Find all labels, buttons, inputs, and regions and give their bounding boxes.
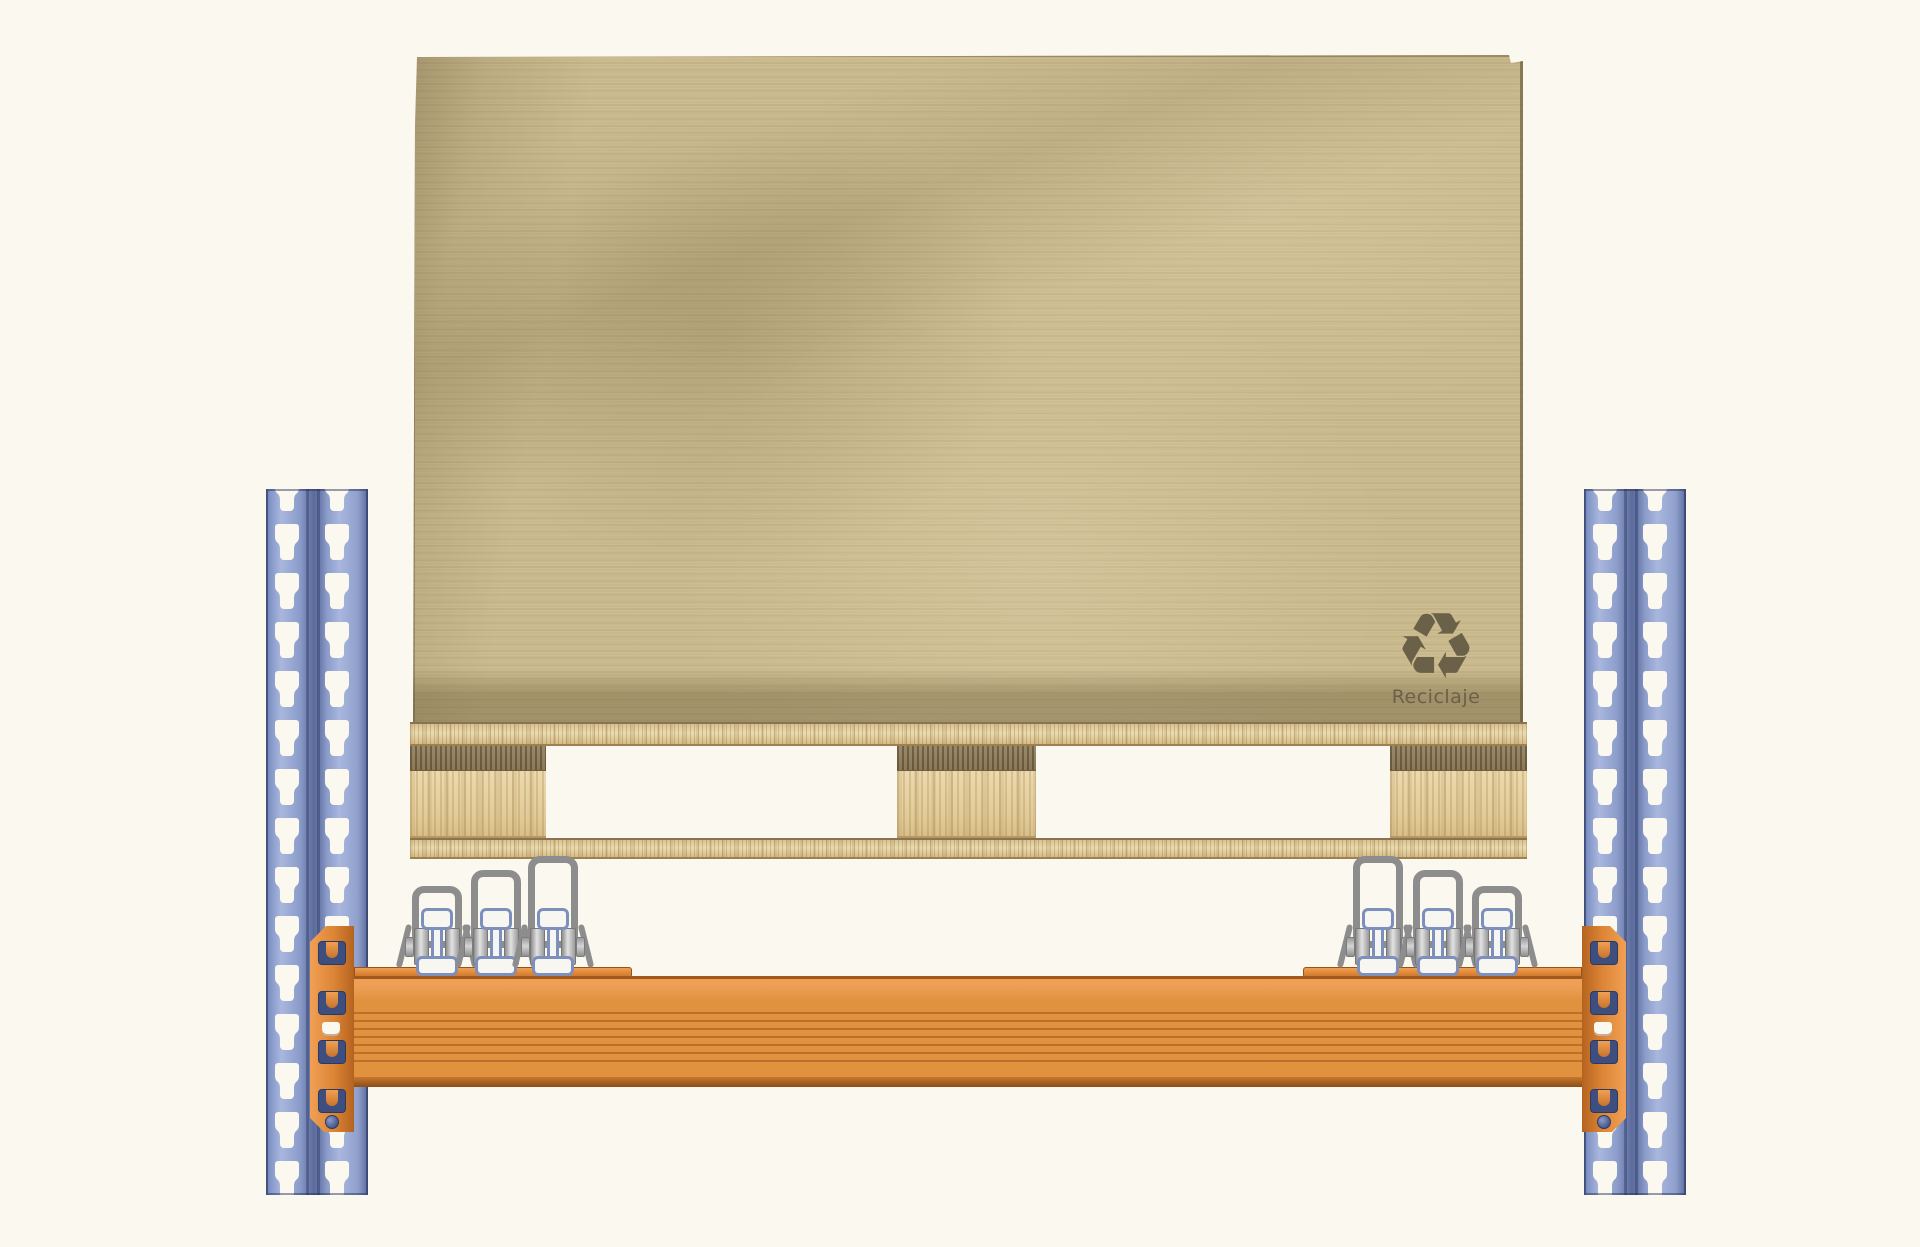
roller-top-plate (1481, 908, 1513, 930)
pallet-block-end-grain (1390, 746, 1527, 771)
connector-safety-slot (322, 1022, 340, 1036)
roller-base-plate (475, 956, 517, 976)
roller-base-plate (1417, 956, 1459, 976)
rack-beam (354, 976, 1582, 1087)
roller-base-plate (532, 956, 574, 976)
roller-assembly (515, 856, 591, 976)
roller-axle-left (464, 937, 473, 957)
pallet-block-body (410, 771, 546, 838)
connector-hook (1590, 1089, 1618, 1113)
roller-base-plate (1476, 956, 1518, 976)
connector-hook (318, 1040, 346, 1064)
recycle-mark: ♻ Reciclaje (1388, 603, 1484, 708)
connector-hook (318, 941, 346, 965)
pallet-block-body (897, 771, 1036, 838)
pallet-rack-illustration: ♻ Reciclaje (0, 0, 1920, 1247)
roller-base-plate (416, 956, 458, 976)
connector-bolt (325, 1115, 339, 1129)
recycle-label: Reciclaje (1388, 686, 1484, 708)
pallet-block-end-grain (410, 746, 546, 771)
roller-top-plate (421, 908, 453, 930)
roller-top-plate (537, 908, 569, 930)
roller-base-plate (1357, 956, 1399, 976)
roller-axle-left (1346, 937, 1355, 957)
roller-top-plate (480, 908, 512, 930)
roller-axle-right (1520, 937, 1529, 957)
connector-hook (318, 1089, 346, 1113)
connector-hook (1590, 1040, 1618, 1064)
beam-grooves (354, 1012, 1582, 1064)
roller-assembly (1459, 886, 1535, 976)
beam-connector-right (1582, 926, 1626, 1132)
connector-hook (1590, 991, 1618, 1015)
paper-covered-load: ♻ Reciclaje (413, 55, 1523, 722)
connector-hook (1590, 941, 1618, 965)
pallet-block-left (410, 746, 546, 838)
connector-bolt (1597, 1115, 1611, 1129)
roller-axle-left (1406, 937, 1415, 957)
beam-connector-left (310, 926, 354, 1132)
pallet-block-end-grain (897, 746, 1036, 771)
roller-axle-right (576, 937, 585, 957)
beam-bottom-edge (354, 1077, 1582, 1087)
roller-top-plate (1422, 908, 1454, 930)
recycle-icon: ♻ (1388, 603, 1484, 690)
roller-axle-left (405, 937, 414, 957)
connector-safety-slot (1594, 1022, 1612, 1036)
pallet-block-right (1390, 746, 1527, 838)
roller-axle-left (1465, 937, 1474, 957)
roller-top-plate (1362, 908, 1394, 930)
pallet-block-body (1390, 771, 1527, 838)
roller-axle-left (521, 937, 530, 957)
connector-hook (318, 991, 346, 1015)
pallet-block-center (897, 746, 1036, 838)
pallet-top-deck-board (410, 722, 1527, 746)
